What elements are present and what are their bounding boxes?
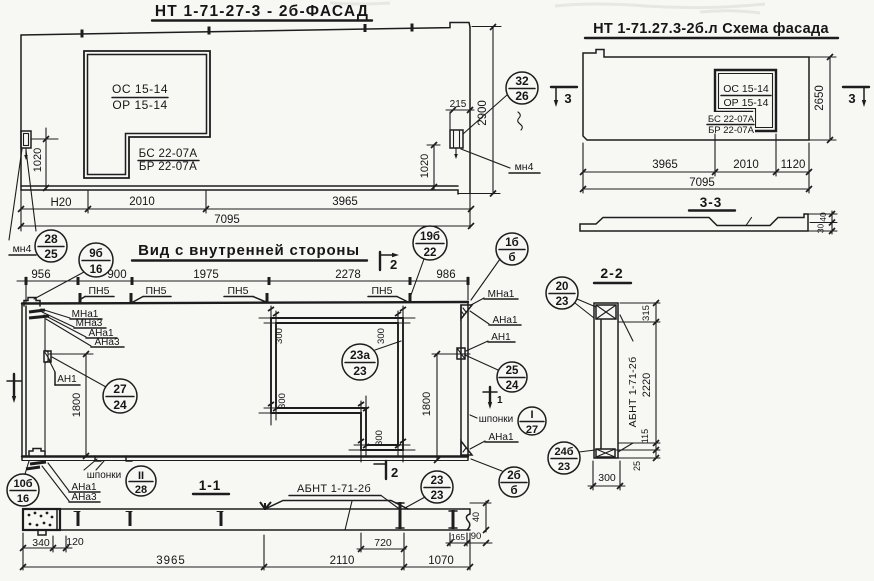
svg-text:90: 90	[471, 531, 482, 542]
svg-text:мн4: мн4	[515, 161, 534, 173]
svg-text:б: б	[508, 252, 515, 264]
svg-text:23: 23	[353, 364, 367, 378]
svg-text:215: 215	[450, 99, 467, 110]
svg-text:1-1: 1-1	[199, 478, 222, 493]
svg-text:25: 25	[632, 461, 642, 471]
svg-text:НТ 1-71-27-3 - 2б-ФАСАД: НТ 1-71-27-3 - 2б-ФАСАД	[155, 3, 369, 20]
svg-text:2010: 2010	[129, 196, 155, 208]
svg-text:2110: 2110	[330, 555, 355, 567]
svg-text:2: 2	[390, 257, 397, 272]
svg-text:3965: 3965	[652, 159, 678, 171]
svg-text:2900: 2900	[477, 100, 489, 126]
svg-text:300: 300	[598, 472, 616, 484]
svg-text:26: 26	[515, 89, 529, 103]
svg-text:АБНТ 1-71-2б: АБНТ 1-71-2б	[627, 357, 639, 428]
svg-text:БС 22-07А: БС 22-07А	[708, 114, 755, 125]
svg-text:шпонки: шпонки	[87, 470, 121, 481]
svg-text:28: 28	[44, 232, 58, 246]
svg-text:ОР 15-14: ОР 15-14	[112, 98, 167, 112]
svg-text:40: 40	[471, 512, 481, 522]
svg-text:ПН5: ПН5	[89, 285, 110, 297]
svg-text:24: 24	[506, 380, 519, 392]
svg-text:40: 40	[818, 212, 828, 222]
svg-text:25: 25	[506, 365, 519, 377]
svg-text:16: 16	[17, 493, 29, 505]
svg-text:23а: 23а	[350, 348, 370, 362]
svg-text:24: 24	[113, 398, 127, 412]
svg-text:340: 340	[32, 537, 50, 549]
svg-text:16: 16	[90, 264, 103, 276]
svg-text:1070: 1070	[428, 555, 454, 567]
svg-text:БР 22-07А: БР 22-07А	[139, 161, 197, 173]
svg-text:1: 1	[497, 395, 503, 406]
svg-text:9б: 9б	[89, 248, 103, 260]
svg-text:1975: 1975	[193, 269, 219, 281]
svg-text:1020: 1020	[419, 154, 431, 178]
svg-text:3: 3	[564, 91, 571, 106]
svg-text:2278: 2278	[335, 269, 361, 281]
svg-text:АН1: АН1	[57, 374, 77, 385]
svg-text:1020: 1020	[32, 148, 44, 172]
svg-text:24б: 24б	[554, 446, 573, 458]
svg-text:22: 22	[424, 247, 437, 259]
svg-text:23: 23	[431, 490, 444, 502]
svg-text:300: 300	[374, 430, 385, 446]
svg-text:23: 23	[558, 461, 570, 473]
svg-text:1800: 1800	[421, 392, 433, 416]
svg-text:956: 956	[31, 269, 50, 281]
svg-text:ПН5: ПН5	[146, 285, 167, 297]
svg-text:АБНТ 1-71-2б: АБНТ 1-71-2б	[297, 483, 371, 495]
svg-text:300: 300	[376, 328, 387, 344]
svg-text:20: 20	[556, 281, 569, 293]
svg-text:Н20: Н20	[50, 197, 71, 209]
svg-text:БС 22-07А: БС 22-07А	[139, 148, 198, 160]
svg-text:23: 23	[556, 296, 569, 308]
svg-text:2-2: 2-2	[600, 265, 623, 281]
svg-text:ОР 15-14: ОР 15-14	[724, 97, 769, 109]
svg-text:30: 30	[816, 224, 826, 234]
svg-text:ПН5: ПН5	[372, 285, 393, 297]
svg-text:27: 27	[113, 382, 127, 396]
svg-text:мн4: мн4	[13, 243, 32, 255]
svg-text:1120: 1120	[781, 159, 806, 171]
svg-text:10б: 10б	[13, 478, 32, 490]
svg-text:165: 165	[451, 532, 465, 542]
svg-text:2220: 2220	[641, 373, 653, 397]
svg-text:ОС 15-14: ОС 15-14	[112, 82, 168, 96]
svg-text:32: 32	[515, 74, 529, 88]
svg-text:шпонки: шпонки	[479, 414, 513, 425]
svg-text:ОС 15-14: ОС 15-14	[723, 83, 769, 95]
svg-text:2010: 2010	[733, 159, 759, 171]
svg-text:300: 300	[277, 393, 288, 409]
svg-text:б: б	[510, 485, 517, 497]
svg-text:7095: 7095	[689, 177, 715, 189]
svg-text:23: 23	[431, 475, 444, 487]
svg-text:I: I	[530, 409, 533, 421]
svg-text:ПН5: ПН5	[228, 285, 249, 297]
svg-text:900: 900	[107, 269, 126, 281]
svg-text:19б: 19б	[420, 231, 440, 243]
svg-text:Вид с внутренней стороны: Вид с внутренней стороны	[138, 242, 360, 259]
svg-text:27: 27	[526, 424, 538, 436]
svg-text:II: II	[138, 470, 144, 482]
svg-text:2б: 2б	[507, 470, 521, 482]
svg-text:1800: 1800	[71, 393, 83, 417]
svg-text:НТ 1-71.27.3-2б.л Схема фасада: НТ 1-71.27.3-2б.л Схема фасада	[593, 21, 829, 37]
svg-text:25: 25	[44, 247, 58, 261]
svg-text:28: 28	[135, 484, 147, 496]
svg-text:986: 986	[436, 269, 455, 281]
svg-text:3-3: 3-3	[700, 195, 723, 210]
svg-text:300: 300	[274, 328, 285, 344]
svg-text:7095: 7095	[214, 214, 240, 226]
svg-text:3965: 3965	[156, 555, 186, 567]
svg-text:2: 2	[391, 465, 398, 480]
svg-text:3: 3	[848, 91, 855, 106]
svg-text:115: 115	[640, 429, 650, 443]
svg-text:3965: 3965	[332, 196, 358, 208]
svg-text:720: 720	[374, 537, 392, 549]
svg-text:1б: 1б	[505, 237, 519, 249]
svg-text:2650: 2650	[814, 85, 826, 111]
svg-text:120: 120	[66, 536, 84, 548]
svg-text:315: 315	[641, 305, 652, 321]
